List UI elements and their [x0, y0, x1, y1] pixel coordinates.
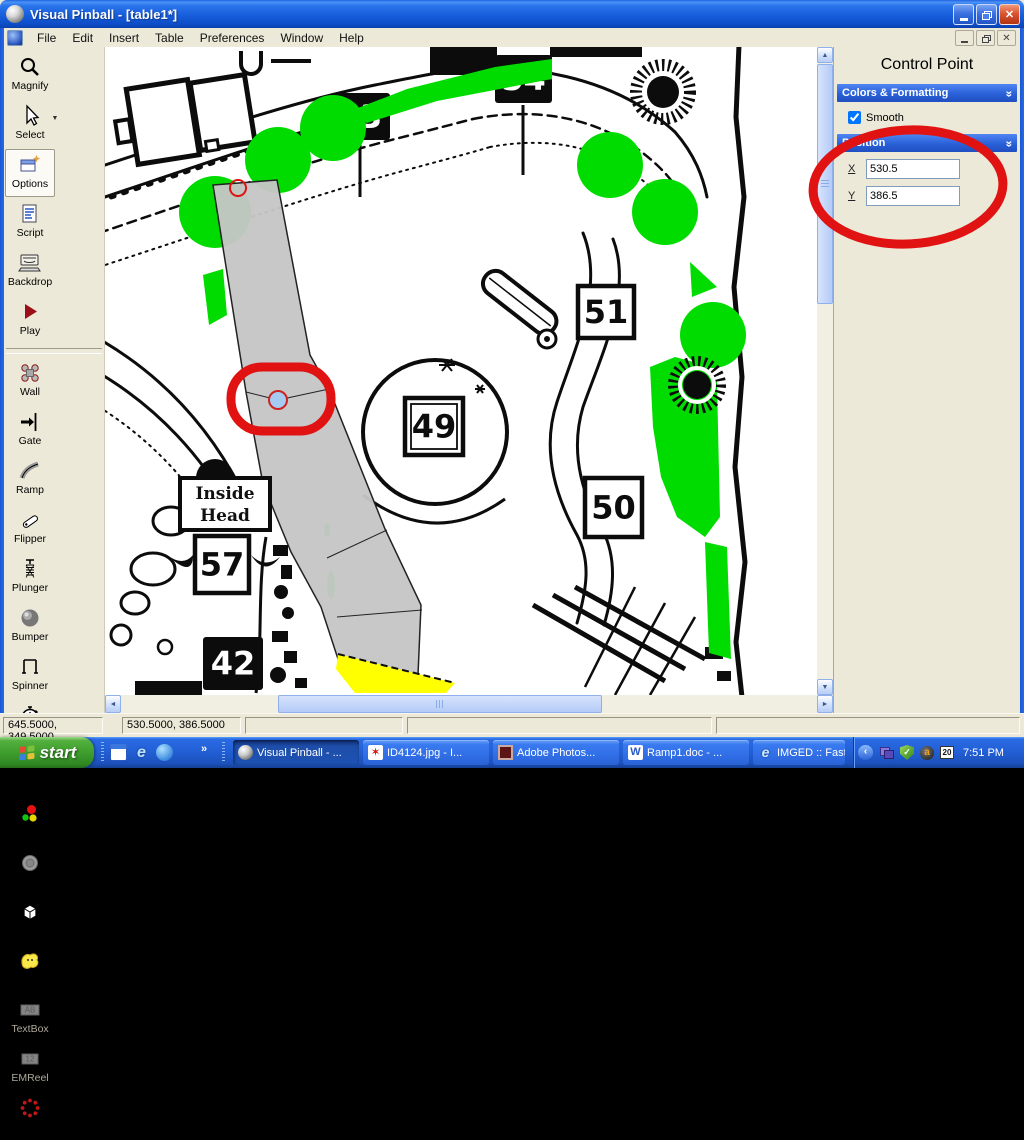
taskbar-task-5[interactable]: eIMGED :: Fast ... [753, 740, 845, 765]
section-position[interactable]: Position » [837, 134, 1017, 152]
wall-icon [18, 361, 42, 385]
panel-title: Control Point [834, 47, 1020, 82]
kicker-icon [18, 851, 42, 875]
scroll-up-button[interactable]: ▲ [817, 47, 833, 63]
restore-icon [982, 11, 991, 19]
select-dropdown-arrow-icon[interactable]: ▼ [50, 115, 60, 122]
menu-table[interactable]: Table [147, 29, 192, 47]
map-sign-inside-head: InsideHead [180, 478, 270, 530]
menu-file[interactable]: File [29, 29, 64, 47]
gate-icon [18, 410, 42, 434]
status-bar: 645.5000, 349.5000530.5000, 386.5000 [0, 713, 1024, 738]
minimize-button[interactable] [953, 4, 974, 25]
ramp-control-point-selected[interactable] [269, 391, 287, 409]
window-frame-right [1020, 28, 1024, 737]
menu-preferences[interactable]: Preferences [192, 29, 273, 47]
taskbar-task-2[interactable]: ✶ID4124.jpg - I... [363, 740, 489, 765]
x-input[interactable] [866, 159, 960, 179]
emreel-icon: 12 [18, 1047, 42, 1071]
horizontal-scrollbar[interactable]: ◄ ► [105, 695, 833, 713]
tray-collapse-chevron-icon[interactable]: ‹ [858, 745, 873, 760]
tool-light[interactable]: Light [5, 798, 55, 846]
tool-label: Decal [17, 974, 44, 986]
options-icon [18, 153, 42, 177]
menu-insert[interactable]: Insert [101, 29, 147, 47]
light-icon [18, 802, 42, 826]
tool-label: Target [15, 925, 44, 937]
flume-ride [478, 266, 561, 348]
windows-flag-icon [18, 744, 36, 762]
restore-icon [982, 35, 990, 42]
chevron-down-icon: » [1003, 141, 1017, 146]
tool-ramp[interactable]: Ramp [5, 455, 55, 503]
close-button[interactable]: ✕ [999, 4, 1020, 25]
tool-kicker[interactable]: Kicker [5, 847, 55, 895]
task-label: IMGED :: Fast ... [777, 747, 845, 759]
textbox-icon: AB [18, 998, 42, 1022]
status-cell-1: 645.5000, 349.5000 [3, 717, 103, 734]
quick-launch-overflow-chevron[interactable]: » [201, 743, 207, 755]
taskbar-task-4[interactable]: WRamp1.doc - ... [623, 740, 749, 765]
calendar-tray-icon[interactable]: 20 [940, 746, 954, 759]
tool-decal[interactable]: Decal [5, 945, 55, 993]
start-label: start [40, 743, 77, 763]
mdi-close-button[interactable]: ✕ [997, 30, 1016, 46]
tool-label: Flipper [14, 533, 46, 545]
script-icon [18, 202, 42, 226]
section-label: Position [842, 137, 885, 149]
play-icon [18, 300, 42, 324]
scroll-right-button[interactable]: ► [817, 695, 833, 713]
tool-label: Magnify [12, 80, 49, 92]
table-editor-canvas[interactable]: 5354 [105, 47, 817, 695]
chevron-down-icon: » [1003, 91, 1017, 96]
plunger-icon [18, 557, 42, 581]
window-title: Visual Pinball - [table1*] [30, 7, 177, 22]
tool-label: Gate [19, 435, 42, 447]
network-tray-icon[interactable] [880, 747, 893, 758]
smooth-checkbox[interactable] [848, 111, 861, 124]
x-label: X [848, 163, 866, 175]
app-icon [6, 5, 24, 23]
smooth-label: Smooth [866, 112, 904, 124]
decal-icon [18, 949, 42, 973]
tool-emreel: 12EMReel [5, 1043, 55, 1091]
close-icon: ✕ [1005, 8, 1014, 21]
svg-text:50: 50 [591, 489, 636, 527]
tool-lightseq[interactable]: LightSeq [5, 1092, 55, 1140]
tool-label: Backdrop [8, 276, 52, 288]
properties-panel: Control Point Colors & Formatting » Smoo… [833, 47, 1020, 713]
tool-label: Plunger [12, 582, 48, 594]
toolbar-grip[interactable] [222, 742, 225, 763]
map-sign-57: 57 [195, 536, 249, 593]
lightseq-icon [18, 1096, 42, 1120]
menu-window[interactable]: Window [272, 29, 331, 47]
restore-button[interactable] [976, 4, 997, 25]
target-icon [18, 900, 42, 924]
tool-wall[interactable]: Wall [5, 357, 55, 405]
map-sign-50: 50 [585, 478, 642, 537]
menu-bar: FileEditInsertTablePreferencesWindowHelp… [4, 28, 1020, 48]
tool-label: Kicker [15, 876, 44, 888]
status-cell-2: 530.5000, 386.5000 [122, 717, 241, 734]
task-label: Visual Pinball - ... [257, 747, 342, 759]
map-sign-49: 49 [405, 398, 463, 455]
taskbar: start e » Visual Pinball - ...✶ID4124.jp… [0, 737, 1024, 768]
y-label: Y [848, 190, 866, 202]
map-detail-u-shape [241, 51, 311, 74]
vertical-scrollbar[interactable]: ▲ ▼ [817, 47, 833, 695]
tool-label: Bumper [12, 631, 49, 643]
svg-text:Head: Head [200, 506, 250, 526]
tool-label: Light [19, 827, 42, 839]
tool-gate[interactable]: Gate [5, 406, 55, 454]
tool-label: Ramp [16, 484, 44, 496]
tool-spinner[interactable]: Spinner [5, 651, 55, 699]
quick-launch-icon-3[interactable] [156, 744, 173, 761]
status-cell-5 [716, 717, 1020, 734]
start-button[interactable]: start [0, 737, 94, 768]
toolbar-separator [6, 348, 102, 354]
ramp-icon [18, 459, 42, 483]
tool-label: Wall [20, 386, 40, 398]
top-black-band-2 [550, 47, 642, 57]
section-colors-formatting[interactable]: Colors & Formatting » [837, 84, 1017, 102]
garden-blobs [111, 507, 189, 654]
menu-edit[interactable]: Edit [64, 29, 101, 47]
taskbar-task-3[interactable]: Adobe Photos... [493, 740, 619, 765]
tool-label: Options [12, 178, 48, 190]
minimize-icon [960, 18, 968, 21]
menu-help[interactable]: Help [331, 29, 372, 47]
tool-bumper[interactable]: Bumper [5, 602, 55, 650]
bottom-hatch [533, 587, 705, 695]
svg-text:12: 12 [26, 1055, 35, 1064]
taskbar-task-1[interactable]: Visual Pinball - ... [233, 740, 359, 765]
tool-options[interactable]: Options [5, 149, 55, 197]
status-cell-3 [245, 717, 403, 734]
tool-label: Script [17, 227, 44, 239]
svg-text:Inside: Inside [195, 484, 254, 504]
tool-plunger[interactable]: Plunger [5, 553, 55, 601]
title-bar: Visual Pinball - [table1*] ✕ [0, 0, 1024, 28]
horizontal-scroll-thumb[interactable] [278, 695, 602, 713]
task-label: Adobe Photos... [517, 747, 595, 759]
svg-text:42: 42 [211, 645, 256, 683]
security-shield-icon[interactable]: ✓ [900, 745, 914, 760]
scroll-down-button[interactable]: ▼ [817, 679, 833, 695]
tool-label: Spinner [12, 680, 48, 692]
tool-label: TextBox [11, 1023, 48, 1035]
minimize-icon [961, 41, 968, 43]
tool-script[interactable]: Script [5, 198, 55, 246]
playfield-drawing: 5354 [105, 47, 817, 695]
flipper-icon [18, 508, 42, 532]
task-label: Ramp1.doc - ... [647, 747, 722, 759]
mdi-restore-button[interactable] [976, 30, 995, 46]
svg-text:57: 57 [200, 546, 245, 584]
tool-label: Select [15, 129, 44, 141]
tool-label: Play [20, 325, 40, 337]
tool-label: EMReel [11, 1072, 48, 1084]
mdi-minimize-button[interactable] [955, 30, 974, 46]
tool-play[interactable]: Play [5, 296, 55, 344]
tool-magnify[interactable]: Magnify [5, 51, 55, 99]
clock: 7:51 PM [963, 747, 1004, 759]
map-sign-51: 51 [578, 286, 634, 338]
map-sign-42: 42 [203, 637, 263, 690]
tool-label: LightSeq [9, 1121, 50, 1133]
section-label: Colors & Formatting [842, 87, 948, 99]
status-cell-4 [407, 717, 712, 734]
close-icon: ✕ [1002, 33, 1010, 44]
map-bar [135, 681, 202, 695]
tool-backdrop[interactable]: Backdrop [5, 247, 55, 295]
svg-text:AB: AB [25, 1006, 36, 1015]
tool-target[interactable]: Target [5, 896, 55, 944]
mdi-child-icon[interactable] [7, 30, 23, 46]
quick-launch-ie-icon[interactable]: e [133, 744, 150, 761]
quick-launch-icon-1[interactable] [110, 744, 127, 761]
spinner-icon [18, 655, 42, 679]
magnify-icon [18, 55, 42, 79]
tool-label: Trigger [14, 778, 47, 790]
scroll-left-button[interactable]: ◄ [105, 695, 121, 713]
antivirus-tray-icon[interactable]: a [920, 746, 934, 760]
select-icon [18, 104, 42, 128]
system-tray: ‹ ✓ a 20 7:51 PM [853, 737, 1024, 768]
svg-text:51: 51 [584, 293, 629, 331]
vertical-scroll-thumb[interactable] [817, 64, 833, 304]
task-label: ID4124.jpg - I... [387, 747, 462, 759]
tool-textbox: ABTextBox [5, 994, 55, 1042]
y-input[interactable] [866, 186, 960, 206]
desktop: Visual Pinball - [table1*] ✕ FileEditIns… [0, 0, 1024, 768]
svg-text:49: 49 [412, 408, 457, 446]
toolbar-grip[interactable] [101, 742, 104, 763]
map-right-boundary [734, 47, 745, 695]
bumper-icon [18, 606, 42, 630]
tool-palette: MagnifySelect▼OptionsScriptBackdropPlayW… [4, 47, 105, 713]
backdrop-icon [18, 251, 42, 275]
tool-select[interactable]: Select▼ [5, 100, 55, 148]
tool-flipper[interactable]: Flipper [5, 504, 55, 552]
